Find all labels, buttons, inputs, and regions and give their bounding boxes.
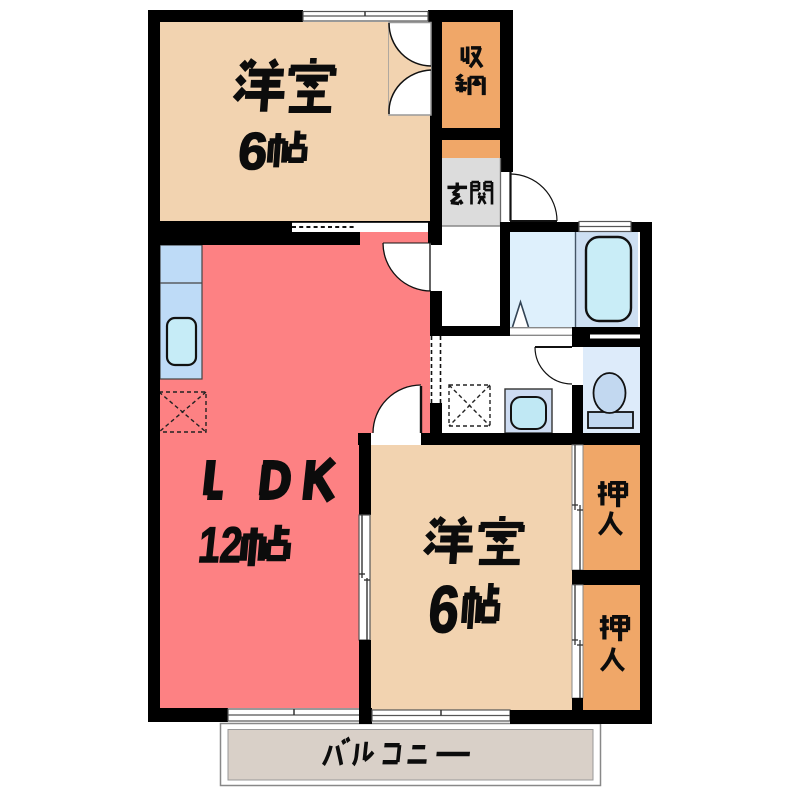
svg-text:12: 12 <box>196 516 245 573</box>
svg-text:6: 6 <box>236 123 270 181</box>
